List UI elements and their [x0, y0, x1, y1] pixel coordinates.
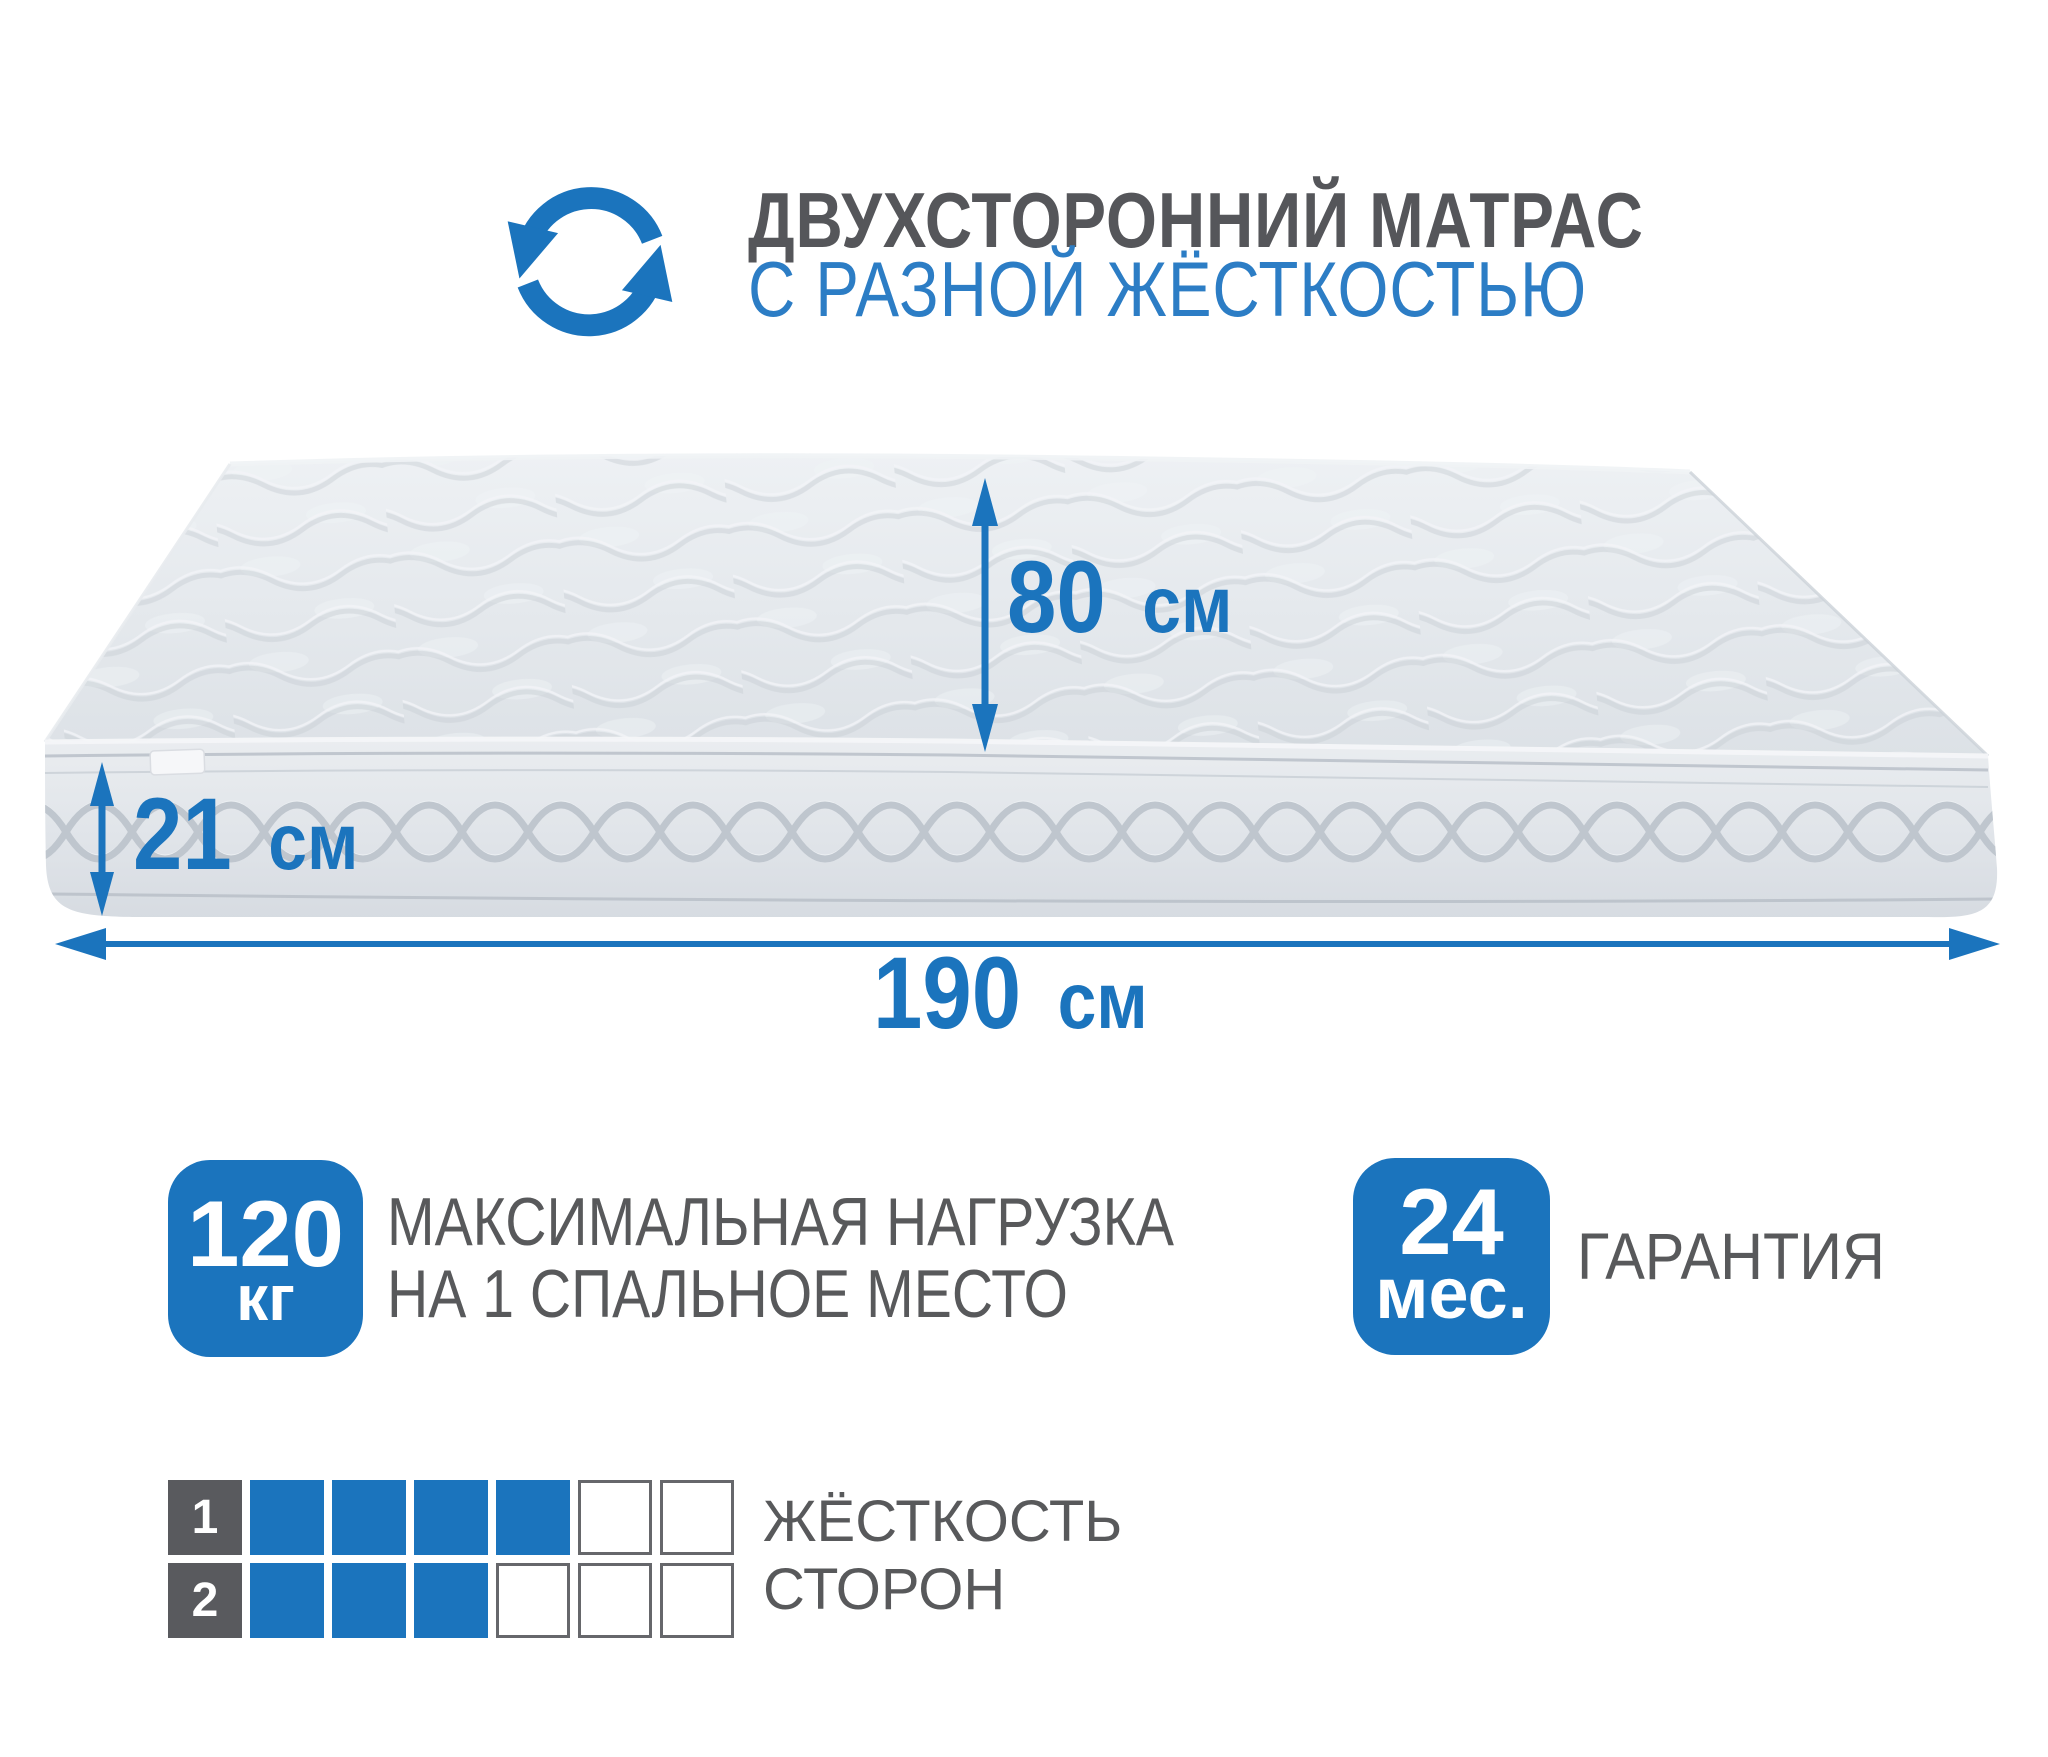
firmness-cell-empty: [496, 1563, 570, 1638]
max-load-unit: кг: [168, 1266, 363, 1330]
firmness-cell-filled: [414, 1480, 488, 1555]
mattress-infographic: ДВУХСТОРОННИЙ МАТРАС С РАЗНОЙ ЖЁСТКОСТЬЮ…: [0, 0, 2048, 1757]
dimension-width-unit: см: [1142, 560, 1232, 649]
warranty-label: ГАРАНТИЯ: [1577, 1223, 1885, 1289]
firmness-side-number: 1: [168, 1480, 242, 1555]
max-load-label-line-2: НА 1 СПАЛЬНОЕ МЕСТО: [387, 1258, 1174, 1330]
firmness-row-1: 1: [168, 1480, 734, 1555]
warranty-badge: 24 мес.: [1353, 1158, 1550, 1355]
firmness-cell-empty: [660, 1480, 734, 1555]
firmness-cell-empty: [578, 1563, 652, 1638]
dimension-height-label: 21см: [133, 783, 358, 885]
firmness-cell-filled: [332, 1563, 406, 1638]
firmness-cell-filled: [414, 1563, 488, 1638]
firmness-cell-filled: [250, 1480, 324, 1555]
max-load-label: МАКСИМАЛЬНАЯ НАГРУЗКА НА 1 СПАЛЬНОЕ МЕСТ…: [387, 1186, 1174, 1330]
title-line-2: С РАЗНОЙ ЖЁСТКОСТЬЮ: [748, 250, 1587, 328]
dimension-height-unit: см: [268, 797, 358, 886]
dimension-width-label: 80см: [1007, 546, 1232, 648]
dimension-length-unit: см: [1058, 956, 1148, 1045]
firmness-cell-filled: [250, 1563, 324, 1638]
firmness-grid: 12: [168, 1480, 734, 1638]
firmness-label-line-2: СТОРОН: [763, 1561, 1005, 1619]
firmness-cell-empty: [578, 1480, 652, 1555]
dimension-width-value: 80: [1007, 540, 1106, 654]
firmness-cell-filled: [496, 1480, 570, 1555]
firmness-cell-filled: [332, 1480, 406, 1555]
mattress-tag: [150, 749, 205, 775]
rotate-arrows-icon: [506, 176, 674, 344]
firmness-label-line-1: ЖЁСТКОСТЬ: [763, 1493, 1122, 1551]
firmness-side-number: 2: [168, 1563, 242, 1638]
dimension-height-value: 21: [133, 777, 232, 891]
dimension-length-value: 190: [873, 936, 1021, 1050]
firmness-row-2: 2: [168, 1563, 734, 1638]
warranty-unit: мес.: [1353, 1258, 1550, 1330]
dimension-length-label: 190см: [873, 942, 1148, 1044]
max-load-badge: 120 кг: [168, 1160, 363, 1357]
max-load-label-line-1: МАКСИМАЛЬНАЯ НАГРУЗКА: [387, 1186, 1174, 1258]
firmness-cell-empty: [660, 1563, 734, 1638]
